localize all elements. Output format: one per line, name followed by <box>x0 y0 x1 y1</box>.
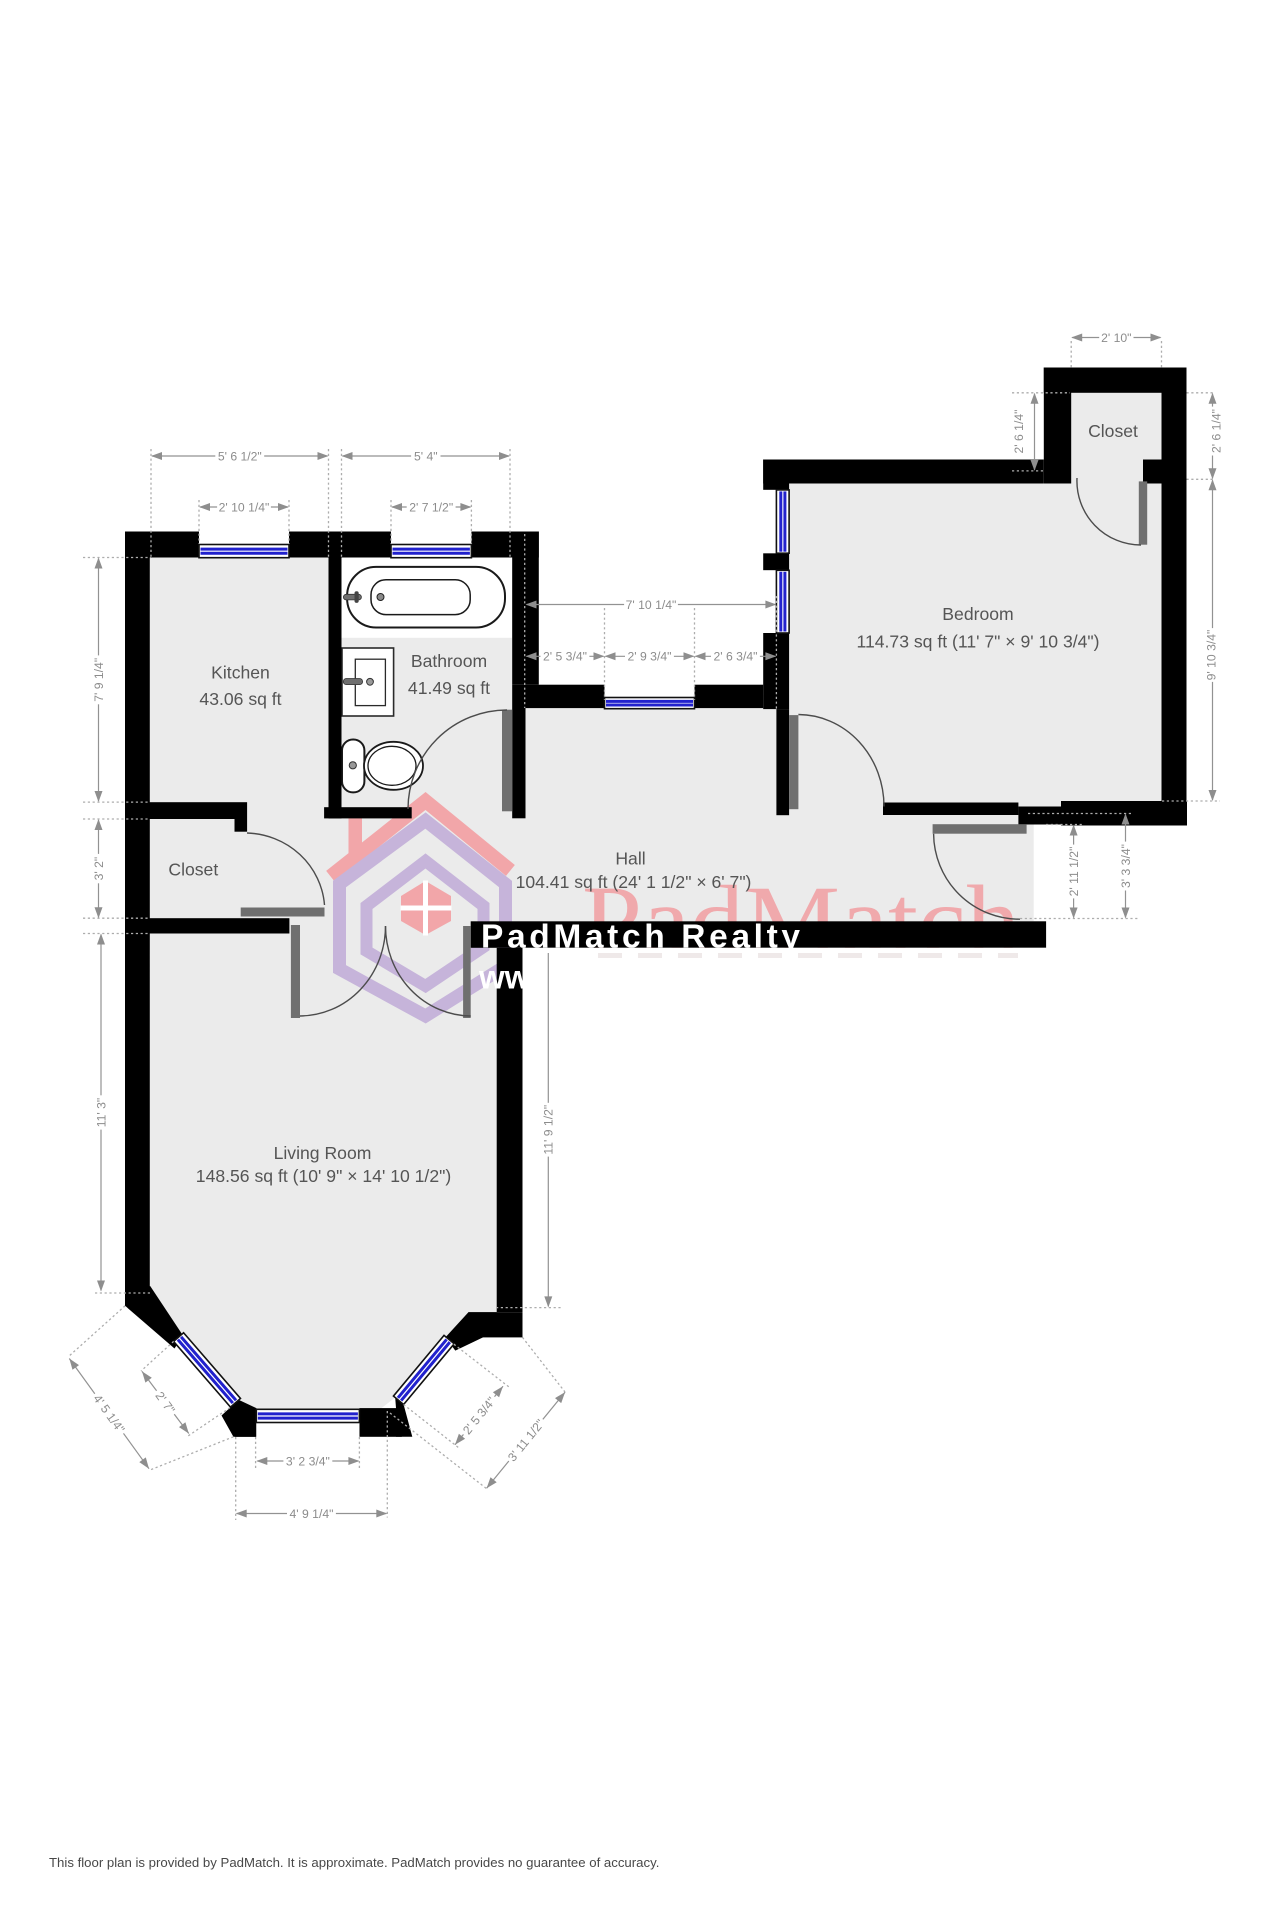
svg-text:7' 9 1/4": 7' 9 1/4" <box>92 658 106 702</box>
svg-text:Kitchen: Kitchen <box>211 662 270 682</box>
svg-text:Hall: Hall <box>615 848 645 868</box>
svg-text:This floor plan is provided by: This floor plan is provided by PadMatch.… <box>49 1855 659 1870</box>
svg-text:11' 3": 11' 3" <box>94 1098 108 1127</box>
svg-text:4' 9 1/4": 4' 9 1/4" <box>290 1507 334 1521</box>
svg-text:148.56 sq ft (10' 9" × 14' 10: 148.56 sq ft (10' 9" × 14' 10 1/2") <box>196 1166 451 1186</box>
svg-text:2' 10 1/4": 2' 10 1/4" <box>219 500 270 514</box>
svg-text:2' 6 3/4": 2' 6 3/4" <box>714 650 758 664</box>
svg-text:114.73 sq ft (11' 7" × 9' 10 3: 114.73 sq ft (11' 7" × 9' 10 3/4") <box>856 631 1099 651</box>
svg-text:11' 9 1/2": 11' 9 1/2" <box>542 1105 556 1155</box>
svg-text:Closet: Closet <box>168 859 218 879</box>
svg-text:7' 10 1/4": 7' 10 1/4" <box>626 598 677 612</box>
svg-text:Bedroom: Bedroom <box>942 604 1013 624</box>
svg-text:2' 6 1/4": 2' 6 1/4" <box>1209 409 1223 453</box>
svg-text:Living Room: Living Room <box>274 1143 372 1163</box>
svg-text:Bathroom: Bathroom <box>411 651 487 671</box>
svg-text:41.49 sq ft: 41.49 sq ft <box>408 678 490 698</box>
svg-text:3' 3 3/4": 3' 3 3/4" <box>1119 844 1133 888</box>
svg-text:2' 7 1/2": 2' 7 1/2" <box>409 500 453 514</box>
svg-text:www.PadMatch.com: www.PadMatch.com <box>478 959 797 996</box>
svg-text:2' 5 3/4": 2' 5 3/4" <box>543 650 587 664</box>
svg-text:2' 6 1/4": 2' 6 1/4" <box>1012 410 1026 454</box>
svg-text:5' 4": 5' 4" <box>414 449 438 463</box>
svg-text:2' 9 3/4": 2' 9 3/4" <box>628 650 672 664</box>
svg-text:43.06 sq ft: 43.06 sq ft <box>199 689 281 709</box>
svg-text:2' 10": 2' 10" <box>1101 331 1131 345</box>
svg-text:3' 2": 3' 2" <box>92 857 106 881</box>
svg-text:2' 11 1/2": 2' 11 1/2" <box>1067 847 1081 897</box>
svg-text:104.41 sq ft (24' 1 1/2" × 6': 104.41 sq ft (24' 1 1/2" × 6' 7") <box>516 872 752 892</box>
svg-text:5' 6 1/2": 5' 6 1/2" <box>218 449 262 463</box>
svg-text:3' 2 3/4": 3' 2 3/4" <box>286 1454 330 1468</box>
svg-text:9' 10 3/4": 9' 10 3/4" <box>1204 630 1218 681</box>
svg-text:Closet: Closet <box>1088 421 1138 441</box>
